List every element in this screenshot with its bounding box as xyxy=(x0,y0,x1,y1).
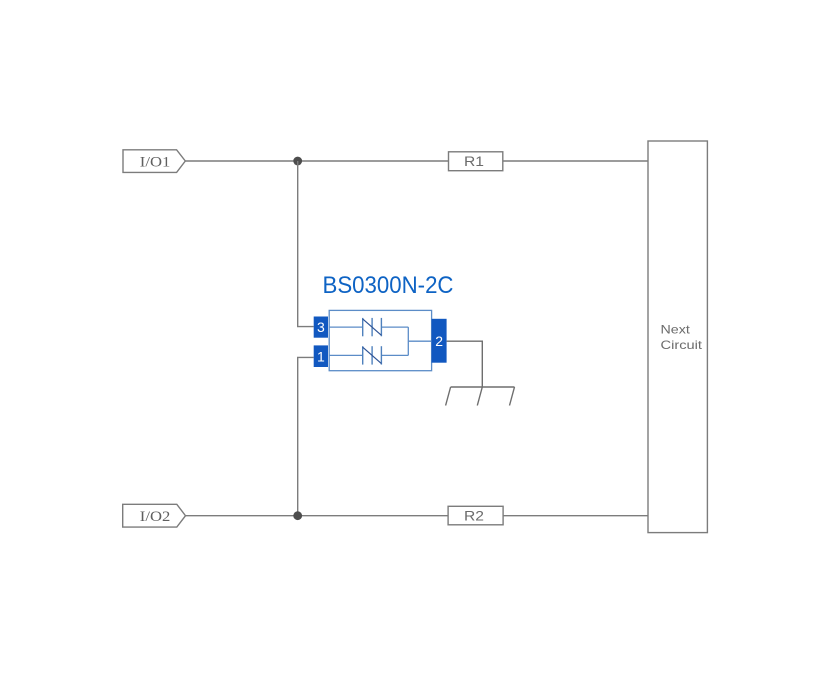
svg-text:I/O2: I/O2 xyxy=(140,509,171,525)
svg-text:1: 1 xyxy=(317,348,325,364)
svg-text:Circuit: Circuit xyxy=(661,338,703,352)
svg-text:3: 3 xyxy=(317,319,325,335)
svg-text:BS0300N-2C: BS0300N-2C xyxy=(323,272,454,299)
svg-text:R1: R1 xyxy=(464,154,484,169)
svg-text:R2: R2 xyxy=(464,509,484,524)
svg-text:Next: Next xyxy=(661,323,691,337)
svg-text:I/O1: I/O1 xyxy=(140,155,171,171)
svg-text:2: 2 xyxy=(435,333,443,349)
